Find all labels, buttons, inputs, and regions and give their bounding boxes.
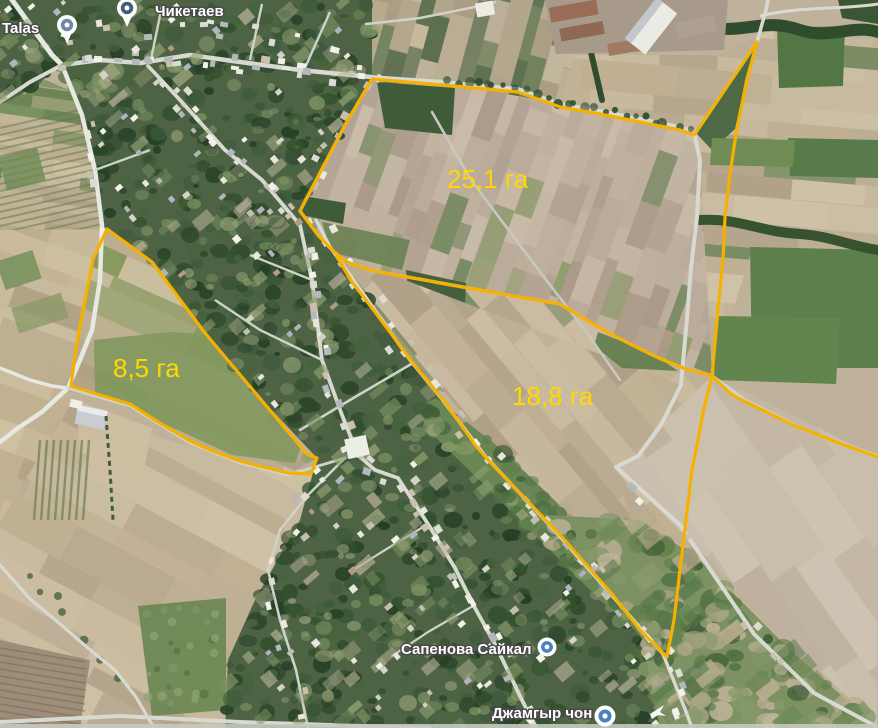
svg-text:25,1 га: 25,1 га	[447, 164, 529, 194]
svg-text:Сапенова Сайкал: Сапенова Сайкал	[401, 641, 531, 658]
svg-text:Talas: Talas	[2, 20, 39, 37]
svg-text:Чикетаев: Чикетаев	[155, 3, 224, 20]
svg-text:18,8 га: 18,8 га	[512, 381, 594, 411]
svg-text:8,5 га: 8,5 га	[113, 353, 180, 383]
svg-text:Джамгыр чон: Джамгыр чон	[492, 705, 592, 722]
